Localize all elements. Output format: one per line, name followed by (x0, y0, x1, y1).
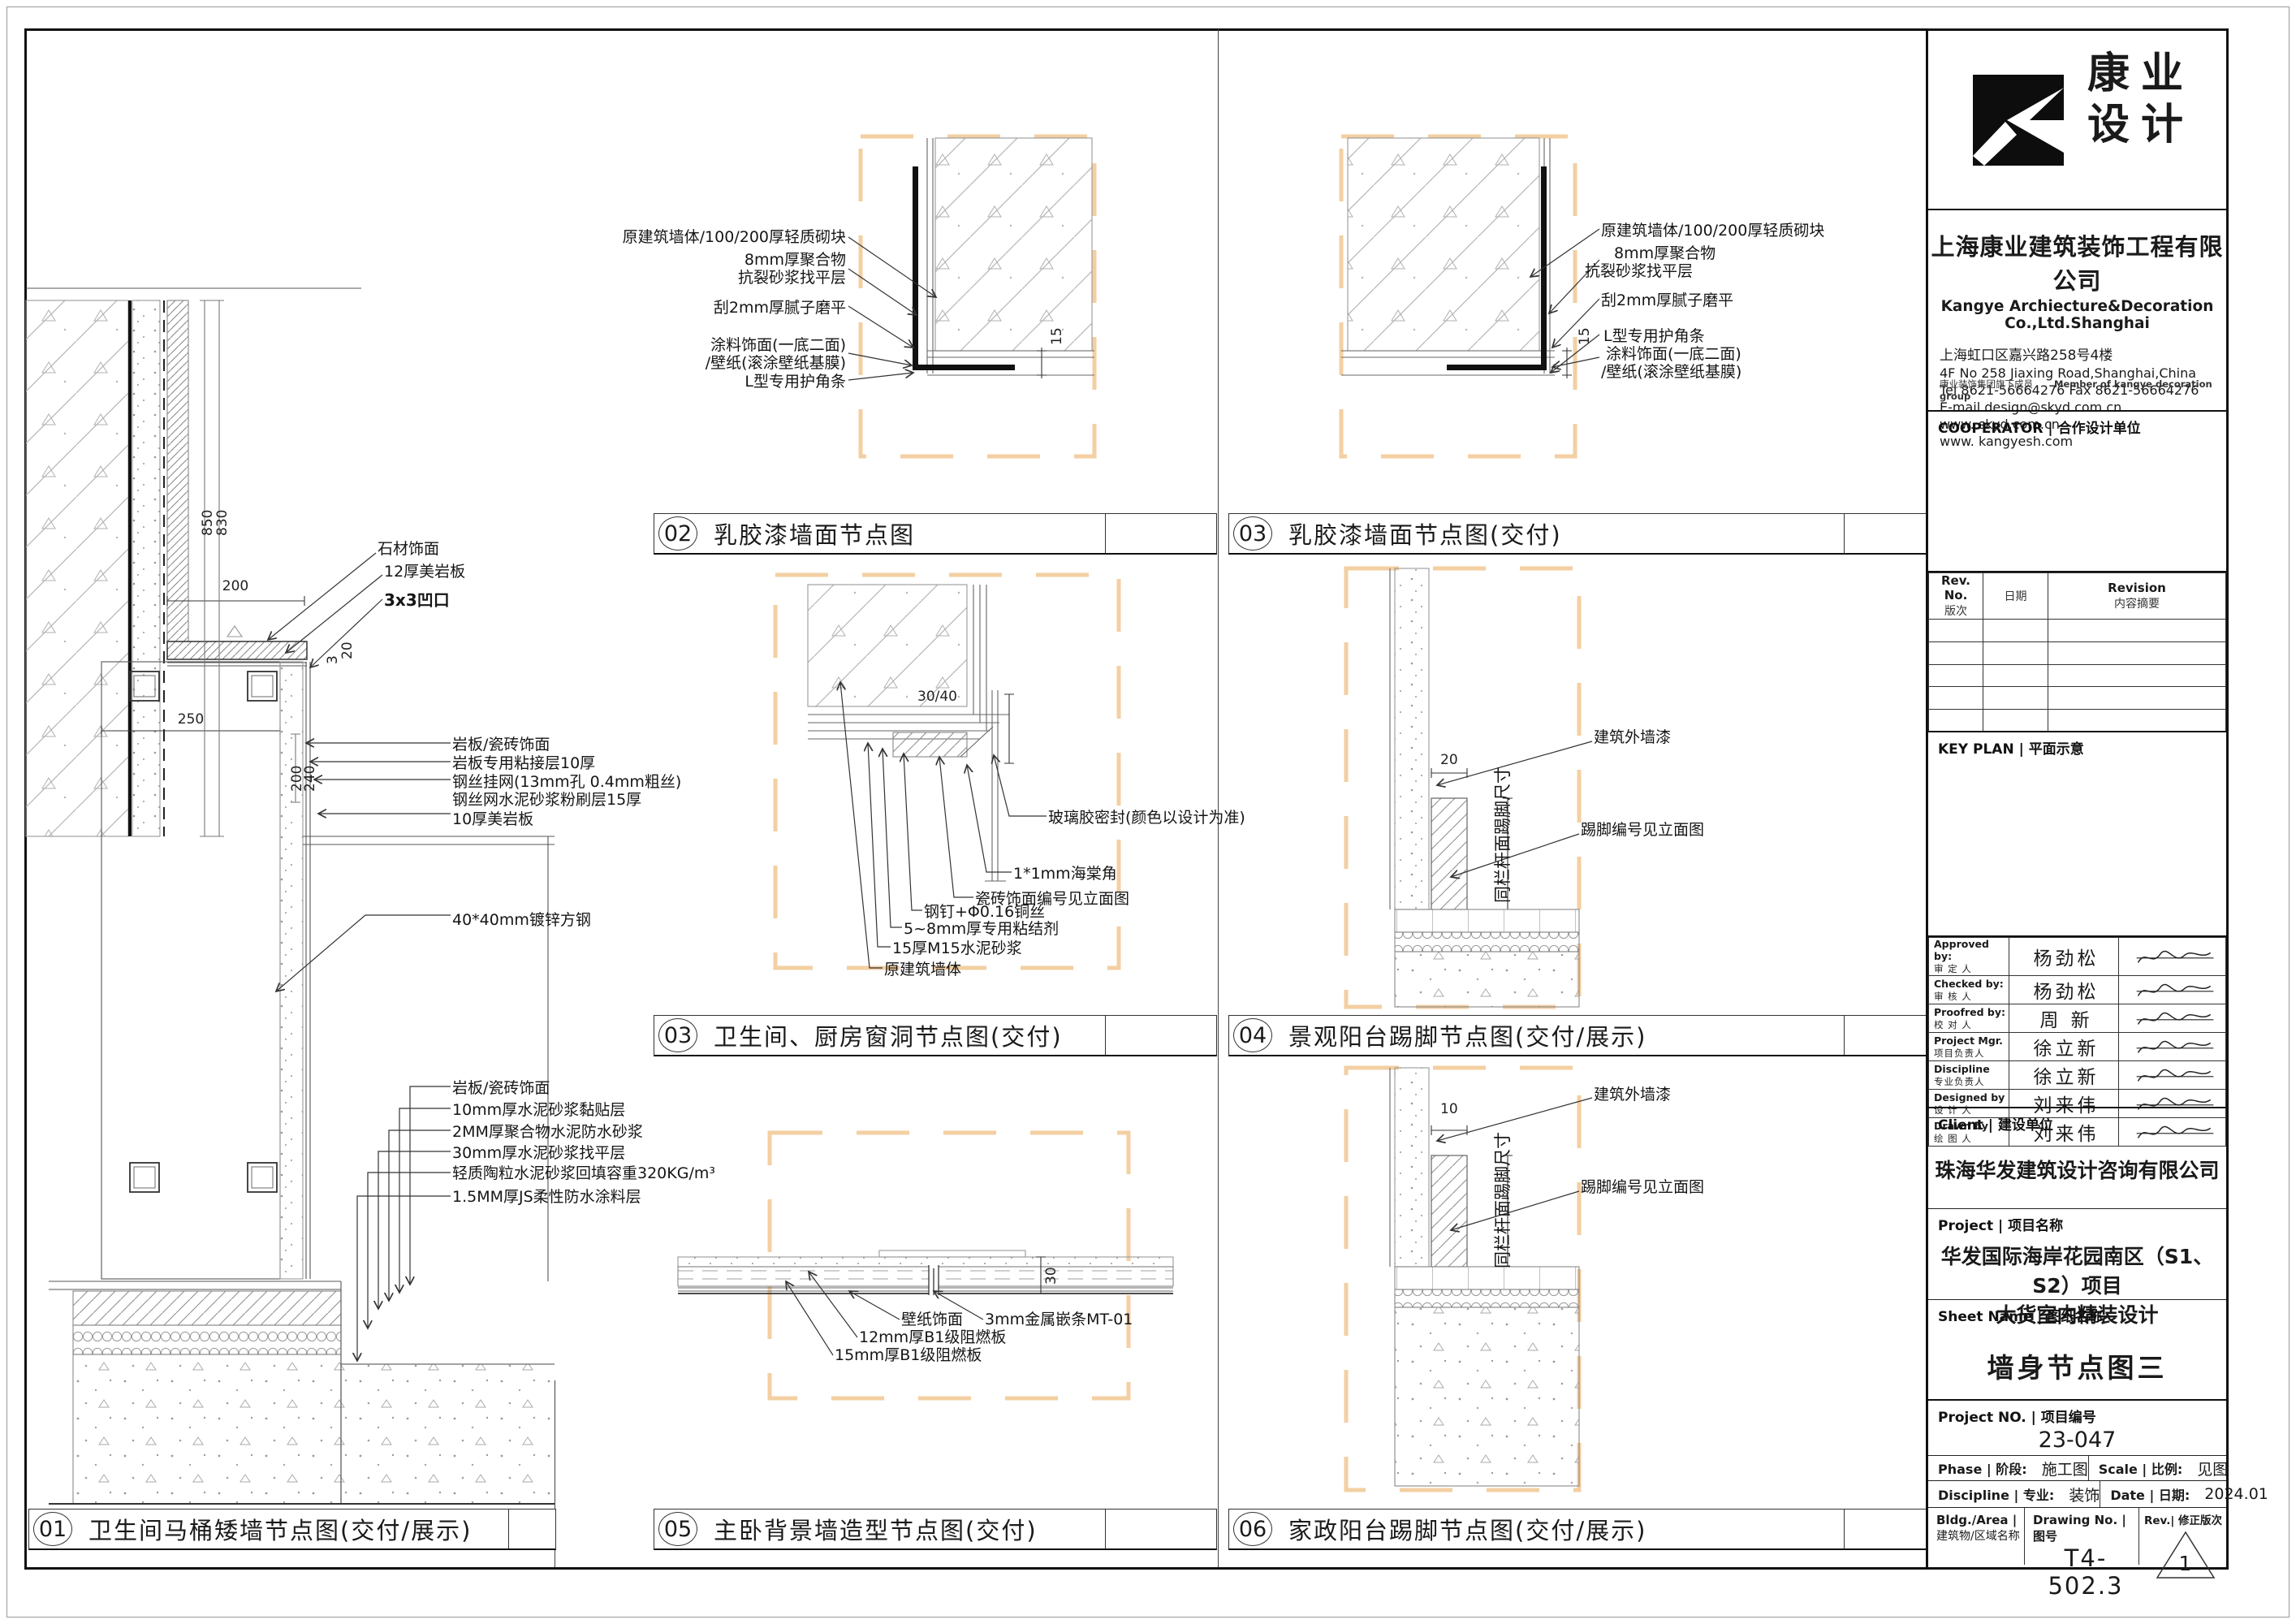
approval-name: 徐立新 (2014, 1061, 2118, 1089)
approval-name: 杨劲松 (2014, 943, 2118, 970)
revision-empty-row (1929, 710, 2226, 732)
sheet-name-section: Sheet Name | 图纸名称 墙身节点图三 (1928, 1299, 2226, 1399)
project-no-value: 23-047 (1928, 1427, 2226, 1453)
callout: 3x3凹口 (384, 590, 450, 611)
project-section: Project | 项目名称 华发国际海岸花园南区（S1、S2）项目 大货室内精… (1928, 1208, 2226, 1299)
client-section: Client | 建设单位 珠海华发建筑设计咨询有限公司 (1928, 1107, 2226, 1208)
client-name: 珠海华发建筑设计咨询有限公司 (1928, 1155, 2226, 1184)
dimension: 20 (339, 641, 356, 659)
date-value: 2024.01 (2204, 1485, 2268, 1503)
callout: 原建筑墙体 (884, 960, 961, 980)
title-separator (508, 1510, 509, 1548)
dimension: 10 (1440, 1101, 1458, 1117)
rev-col3-cn: 内容摘要 (2114, 598, 2160, 611)
approvals-section: Approved by:审 定 人 杨劲松 Checked by:审 核 人 杨… (1928, 935, 2226, 1107)
approval-name: 周 新 (2014, 1004, 2118, 1032)
bldg-label-en: Bldg./Area | (1936, 1513, 2024, 1527)
detail-number: 05 (658, 1512, 697, 1546)
callout: 玻璃胶密封(颜色以设计为准) (1048, 808, 1245, 828)
approval-role-en: Checked by: (1934, 978, 2009, 990)
member-line: 康业装饰集团旗下成员Member of kangye decoration gr… (1940, 378, 2226, 402)
title-separator (1844, 514, 1845, 553)
detail-number: 02 (658, 516, 697, 551)
callout: 岩板专用粘接层10厚 (452, 754, 595, 774)
logo-section: 康业 设计 (1928, 28, 2226, 209)
company-section: 上海康业建筑装饰工程有限公司 Kangye Archiecture&Decora… (1928, 209, 2226, 410)
callout: 10mm厚水泥砂浆黏贴层 (452, 1100, 625, 1121)
dimension: 3 (325, 655, 341, 664)
detail-04-drawing (1218, 552, 1926, 1056)
sheet-name-value: 墙身节点图三 (1928, 1346, 2226, 1385)
approval-row: Project Mgr.项目负责人 徐立新 (1929, 1033, 2226, 1061)
callout: 建筑外墙漆 (1594, 728, 1671, 748)
callout: 5~8mm厚专用粘结剂 (904, 919, 1059, 939)
revision-table: Rev. No.版次 日期 Revision内容摘要 (1928, 572, 2226, 732)
callout: /壁纸(滚涂壁纸基膜) (1601, 362, 1741, 382)
panel-title-06: 06 家政阳台踢脚节点图(交付/展示) (1228, 1509, 1927, 1550)
detail-number: 06 (1233, 1512, 1272, 1546)
member-cn: 康业装饰集团旗下成员 (1940, 378, 2033, 390)
callout: 原建筑墙体/100/200厚轻质砌块 (1601, 221, 1824, 241)
title-separator (1105, 1016, 1106, 1055)
dimension: 850 (200, 510, 216, 536)
dimension: 250 (178, 711, 204, 728)
revision-section: Rev. No.版次 日期 Revision内容摘要 (1928, 571, 2226, 731)
revision-empty-row (1929, 641, 2226, 664)
approval-role-cn: 项目负责人 (1934, 1047, 2009, 1060)
callout: 刮2mm厚腻子磨平 (1601, 291, 1733, 311)
title-separator (1105, 514, 1106, 553)
revision-empty-row (1929, 664, 2226, 687)
panel-title-01: 01 卫生间马桶矮墙节点图(交付/展示) (28, 1509, 556, 1550)
dimension: 15 (1049, 327, 1065, 345)
detail-title: 家政阳台踢脚节点图(交付/展示) (1288, 1512, 1646, 1546)
dimension: 240 (302, 766, 318, 792)
revision-triangle: 1 (2156, 1531, 2216, 1579)
approval-role-en: Project Mgr. (1934, 1034, 2009, 1047)
callout: /壁纸(滚涂壁纸基膜) (706, 353, 846, 374)
callout: 岩板/瓷砖饰面 (452, 1078, 550, 1099)
discipline-label: Discipline | 专业: (1938, 1484, 2054, 1504)
approval-role-en: Proofred by: (1934, 1006, 2009, 1018)
approval-role-en: Approved by: (1934, 938, 2009, 962)
signature-image (2130, 946, 2220, 967)
detail-title: 景观阳台踢脚节点图(交付/展示) (1288, 1018, 1646, 1052)
callout: 原建筑墙体/100/200厚轻质砌块 (623, 227, 846, 248)
drawing-no-label: Drawing No. | 图号 (2033, 1513, 2138, 1544)
dimension: 30 (1043, 1267, 1060, 1285)
callout: 40*40mm镀锌方钢 (452, 910, 591, 931)
rev-col3-en: Revision (2108, 581, 2166, 595)
approval-name: 杨劲松 (2014, 976, 2118, 1004)
callout: 1.5MM厚JS柔性防水涂料层 (452, 1187, 641, 1207)
title-separator (1844, 1510, 1845, 1548)
callout: 15厚M15水泥砂浆 (892, 939, 1022, 959)
detail-number: 03 (1233, 516, 1272, 551)
detail-number: 01 (33, 1512, 72, 1546)
callout: 15mm厚B1级阻燃板 (835, 1345, 982, 1366)
company-address-cn: 上海虹口区嘉兴路258号4楼 (1940, 343, 2226, 364)
detail-02-drawing (555, 29, 1218, 552)
signature-image (2130, 979, 2220, 1000)
bldg-label-cn: 建筑物/区域名称 (1936, 1527, 2024, 1544)
detail-number: 03 (658, 1018, 697, 1052)
callout: 岩板/瓷砖饰面 (452, 735, 550, 755)
callout: 10厚美岩板 (452, 810, 533, 830)
title-separator (1105, 1510, 1106, 1548)
rev-col1-cn: 版次 (1944, 605, 1967, 618)
detail-title: 乳胶漆墙面节点图(交付) (1288, 516, 1562, 551)
callout: 30mm厚水泥砂浆找平层 (452, 1143, 625, 1164)
approval-role-en: Discipline (1934, 1063, 2009, 1075)
company-name-cn: 上海康业建筑装饰工程有限公司 (1928, 228, 2226, 296)
scale-label: Scale | 比例: (2099, 1458, 2183, 1478)
approval-row: Proofred by:校 对 人 周 新 (1929, 1004, 2226, 1033)
detail-06-drawing (1218, 1056, 1926, 1510)
panel-title-02: 02 乳胶漆墙面节点图 (654, 513, 1217, 555)
revision-empty-row (1929, 687, 2226, 710)
approval-role-cn: 专业负责人 (1934, 1075, 2009, 1088)
panel-title-03-mid: 03 卫生间、厨房窗洞节点图(交付) (654, 1015, 1217, 1056)
callout: 钢丝网水泥砂浆粉刷层15厚 (452, 790, 641, 810)
detail-title: 卫生间马桶矮墙节点图(交付/展示) (88, 1512, 472, 1546)
panel-title-05: 05 主卧背景墙造型节点图(交付) (654, 1509, 1217, 1550)
discipline-value: 装饰 (2069, 1484, 2100, 1505)
approval-role-cn: 审 定 人 (1934, 962, 2009, 975)
callout: 抗裂砂浆找平层 (738, 268, 846, 288)
detail-title: 乳胶漆墙面节点图 (714, 516, 915, 551)
callout: 3mm金属嵌条MT-01 (985, 1310, 1133, 1330)
callout: 建筑外墙漆 (1594, 1085, 1671, 1105)
title-separator (1844, 1016, 1845, 1055)
project-label: Project | 项目名称 (1928, 1209, 2226, 1234)
dimension: 15 (1577, 327, 1593, 345)
rev-col2: 日期 (2005, 590, 2027, 603)
approval-row: Checked by:审 核 人 杨劲松 (1929, 976, 2226, 1004)
discipline-date-row: Discipline | 专业:装饰 Date | 日期:2024.01 (1928, 1480, 2226, 1507)
rev-label: Rev.| 修正版次 (2144, 1511, 2226, 1527)
detail-title: 卫生间、厨房窗洞节点图(交付) (714, 1018, 1063, 1052)
panel-title-03-top: 03 乳胶漆墙面节点图(交付) (1228, 513, 1927, 555)
drawing-no-value: T4-502.3 (2033, 1544, 2138, 1600)
date-label: Date | 日期: (2110, 1484, 2190, 1504)
callout: 12厚美岩板 (384, 562, 465, 582)
signature-image (2130, 1008, 2220, 1029)
approval-row: Discipline专业负责人 徐立新 (1929, 1061, 2226, 1090)
phase-value: 施工图 (2042, 1458, 2088, 1479)
callout: 轻质陶粒水泥砂浆回填容重320KG/m³ (452, 1164, 715, 1184)
keyplan-label: KEY PLAN | 平面示意 (1928, 732, 2226, 758)
callout: L型专用护角条 (744, 372, 846, 392)
dimension: 30/40 (917, 689, 957, 705)
approval-row: Approved by:审 定 人 杨劲松 (1929, 938, 2226, 976)
keyplan-section: KEY PLAN | 平面示意 (1928, 731, 2226, 935)
approval-role-en: Designed by (1934, 1091, 2009, 1104)
rev-value: 1 (2179, 1552, 2192, 1575)
callout: 1*1mm海棠角 (1013, 864, 1117, 884)
title-block: 康业 设计 上海康业建筑装饰工程有限公司 Kangye Archiecture&… (1926, 28, 2226, 1567)
scale-value: 见图 (2197, 1458, 2228, 1479)
detail-number: 04 (1233, 1018, 1272, 1052)
project-no-label: Project NO. | 项目编号 (1928, 1401, 2226, 1426)
signature-image (2130, 1036, 2220, 1057)
callout: 踢脚编号见立面图 (1581, 820, 1704, 840)
callout-vertical: 同栏杆面踢脚尺寸 (1492, 767, 1515, 903)
callout: 刮2mm厚腻子磨平 (714, 298, 846, 318)
logo-text: 康业 设计 (2087, 49, 2195, 152)
kangye-logo-icon (1973, 75, 2064, 166)
detail-title: 主卧背景墙造型节点图(交付) (714, 1512, 1038, 1546)
cooperator-section: COOPERATOR | 合作设计单位 (1928, 410, 2226, 571)
dimension: 830 (214, 510, 231, 536)
cooperator-label: COOPERATOR | 合作设计单位 (1928, 412, 2226, 437)
sheet-name-label: Sheet Name | 图纸名称 (1928, 1300, 2226, 1325)
approval-name: 徐立新 (2014, 1033, 2118, 1060)
revision-empty-row (1929, 620, 2226, 642)
rev-col1-en: Rev. No. (1941, 573, 1970, 603)
company-name-en: Kangye Archiecture&Decoration Co.,Ltd.Sh… (1928, 298, 2226, 332)
dimension: 20 (1440, 752, 1458, 768)
phase-scale-row: Phase | 阶段:施工图 Scale | 比例:见图 (1928, 1455, 2226, 1480)
approval-role-cn: 校 对 人 (1934, 1018, 2009, 1031)
project-name-line1: 华发国际海岸花园南区（S1、S2）项目 (1928, 1241, 2226, 1299)
drawing-no-row: Bldg./Area | 建筑物/区域名称 Drawing No. | 图号 T… (1928, 1507, 2226, 1565)
callout: 2MM厚聚合物水泥防水砂浆 (452, 1122, 643, 1142)
detail-05-drawing (555, 1056, 1218, 1510)
signature-image (2130, 1065, 2220, 1086)
callout: 踢脚编号见立面图 (1581, 1177, 1704, 1198)
detail-03-top-drawing (1218, 29, 1926, 552)
callout-vertical: 同栏杆面踢脚尺寸 (1492, 1132, 1515, 1268)
callout: 石材饰面 (378, 539, 439, 559)
approval-role-cn: 审 核 人 (1934, 990, 2009, 1003)
project-no-section: Project NO. | 项目编号 23-047 (1928, 1399, 2226, 1455)
phase-label: Phase | 阶段: (1938, 1458, 2027, 1478)
drawing-sheet: 石材饰面 12厚美岩板 3x3凹口 岩板/瓷砖饰面 岩板专用粘接层10厚 钢丝挂… (0, 0, 2296, 1624)
panel-title-04: 04 景观阳台踢脚节点图(交付/展示) (1228, 1015, 1927, 1056)
client-label: Client | 建设单位 (1928, 1108, 2226, 1134)
callout: 抗裂砂浆找平层 (1585, 261, 1693, 282)
dimension: 200 (222, 578, 248, 594)
